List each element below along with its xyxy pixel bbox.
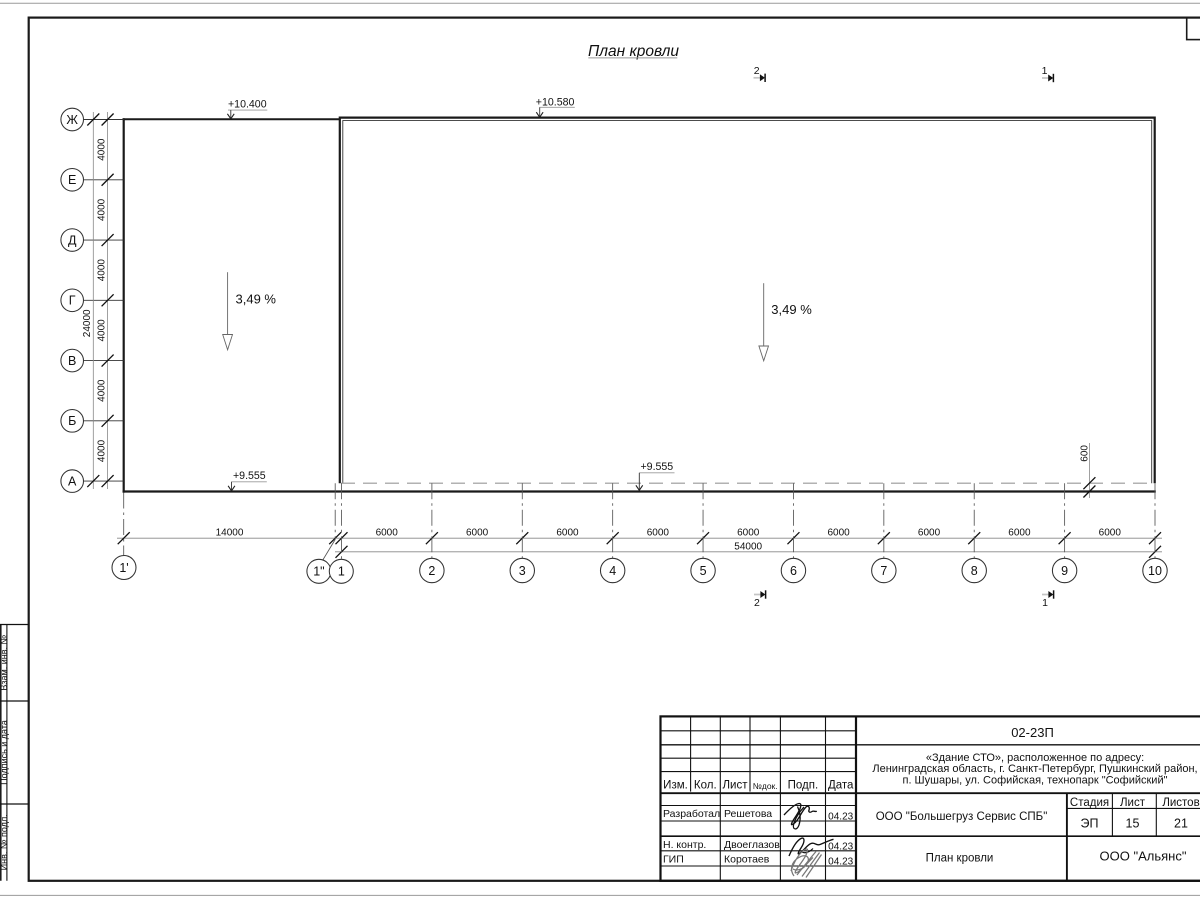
svg-text:15: 15 <box>1126 817 1140 831</box>
svg-text:6000: 6000 <box>1099 528 1122 539</box>
svg-text:1": 1" <box>313 565 324 579</box>
svg-text:4000: 4000 <box>97 439 108 462</box>
svg-text:10: 10 <box>1148 564 1162 578</box>
svg-text:В: В <box>68 354 76 368</box>
svg-text:Г: Г <box>69 294 76 308</box>
svg-text:1: 1 <box>338 565 345 579</box>
svg-text:+9.555: +9.555 <box>641 461 674 473</box>
svg-text:Е: Е <box>68 173 76 187</box>
svg-text:54000: 54000 <box>734 541 762 552</box>
svg-text:Ж: Ж <box>66 113 78 127</box>
svg-text:14000: 14000 <box>216 528 244 539</box>
svg-text:4000: 4000 <box>97 319 108 342</box>
svg-text:4000: 4000 <box>97 138 108 161</box>
svg-text:5: 5 <box>700 564 707 578</box>
svg-text:3,49 %: 3,49 % <box>236 292 277 307</box>
svg-text:План кровли: План кровли <box>926 853 994 865</box>
svg-text:6000: 6000 <box>1008 528 1031 539</box>
svg-text:Двоеглазов: Двоеглазов <box>724 839 780 851</box>
svg-text:8: 8 <box>971 564 978 578</box>
svg-text:Н. контр.: Н. контр. <box>663 839 706 851</box>
svg-text:Кол.: Кол. <box>694 779 717 791</box>
svg-text:1': 1' <box>119 561 128 575</box>
svg-text:Ленинградская область, г. Санк: Ленинградская область, г. Санкт-Петербур… <box>872 763 1197 775</box>
svg-text:4000: 4000 <box>97 198 108 221</box>
svg-text:№док.: №док. <box>753 781 778 791</box>
svg-text:Дата: Дата <box>828 779 854 791</box>
svg-text:1: 1 <box>1042 65 1048 77</box>
svg-text:6: 6 <box>790 564 797 578</box>
svg-text:Разработал: Разработал <box>663 808 720 820</box>
svg-text:Инв. № подл.: Инв. № подл. <box>0 814 9 870</box>
svg-text:«Здание СТО», расположенное по: «Здание СТО», расположенное по адресу: <box>926 752 1144 764</box>
svg-text:02-23П: 02-23П <box>1011 725 1054 740</box>
svg-text:Решетова: Решетова <box>724 808 772 820</box>
svg-text:Стадия: Стадия <box>1070 797 1109 809</box>
svg-text:4: 4 <box>609 564 616 578</box>
svg-text:600: 600 <box>1080 445 1091 462</box>
svg-text:Коротаев: Коротаев <box>724 853 770 865</box>
svg-text:Подп.: Подп. <box>788 779 819 791</box>
svg-text:04.23: 04.23 <box>828 841 853 852</box>
svg-text:3: 3 <box>519 564 526 578</box>
svg-text:Листов: Листов <box>1162 797 1199 809</box>
svg-text:2: 2 <box>754 65 760 77</box>
svg-text:7: 7 <box>880 564 887 578</box>
svg-text:Взам. инв. №: Взам. инв. № <box>0 634 9 690</box>
svg-text:ООО "Альянс": ООО "Альянс" <box>1100 849 1187 864</box>
svg-text:1: 1 <box>1042 597 1048 609</box>
svg-text:Лист: Лист <box>723 779 749 791</box>
svg-text:04.23: 04.23 <box>828 856 853 867</box>
svg-text:А: А <box>68 475 77 489</box>
svg-text:+10.400: +10.400 <box>228 98 267 110</box>
svg-text:6000: 6000 <box>466 528 489 539</box>
svg-text:4000: 4000 <box>97 259 108 282</box>
svg-text:+10.580: +10.580 <box>536 96 575 108</box>
svg-text:Д: Д <box>68 233 77 247</box>
svg-text:+9.555: +9.555 <box>233 470 266 482</box>
svg-text:2: 2 <box>428 564 435 578</box>
svg-text:п. Шушары, ул. Софийская, техн: п. Шушары, ул. Софийская, технопарк "Соф… <box>902 775 1167 787</box>
svg-text:6000: 6000 <box>376 528 399 539</box>
svg-text:04.23: 04.23 <box>828 811 853 822</box>
svg-text:Б: Б <box>68 414 76 428</box>
svg-text:6000: 6000 <box>737 528 760 539</box>
svg-text:План кровли: План кровли <box>588 43 679 60</box>
svg-text:Изм.: Изм. <box>663 779 688 791</box>
svg-text:4000: 4000 <box>97 379 108 402</box>
svg-text:2: 2 <box>754 597 760 609</box>
svg-text:ООО "Большегруз Сервис СПБ": ООО "Большегруз Сервис СПБ" <box>876 811 1048 823</box>
svg-text:24000: 24000 <box>82 309 93 337</box>
svg-text:3,49 %: 3,49 % <box>771 302 812 317</box>
svg-text:6000: 6000 <box>647 528 670 539</box>
svg-text:ЭП: ЭП <box>1081 817 1099 831</box>
svg-text:Лист: Лист <box>1120 797 1146 809</box>
svg-text:9: 9 <box>1061 564 1068 578</box>
svg-text:21: 21 <box>1174 817 1188 831</box>
svg-text:6000: 6000 <box>556 528 579 539</box>
svg-text:ГИП: ГИП <box>663 853 684 865</box>
svg-text:6000: 6000 <box>828 528 851 539</box>
svg-text:Подпись и дата: Подпись и дата <box>0 720 9 785</box>
svg-text:6000: 6000 <box>918 528 941 539</box>
